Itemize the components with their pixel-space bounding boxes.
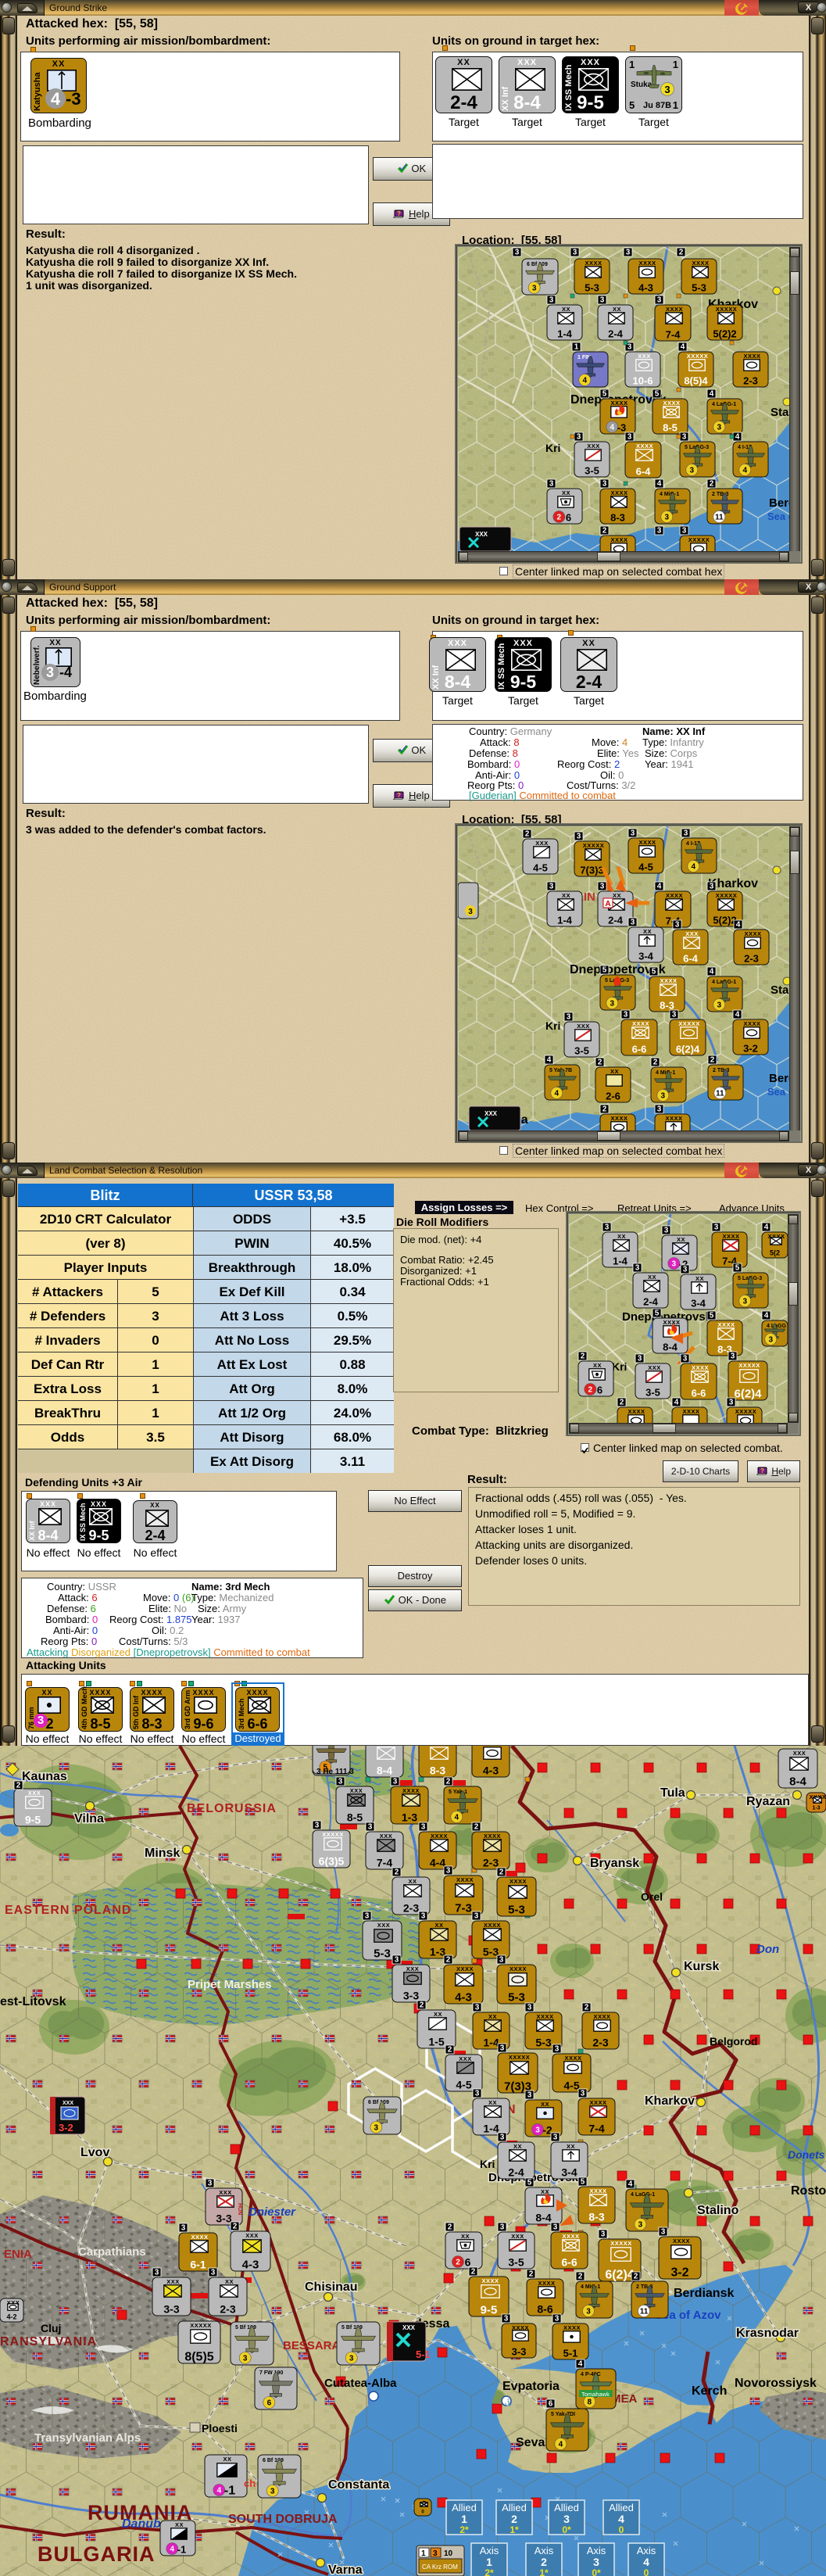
svg-text:3: 3 xyxy=(610,1000,615,1009)
svg-text:XXXX: XXXX xyxy=(743,1020,760,1027)
svg-text:XX: XX xyxy=(223,2456,231,2463)
svg-text:2-3: 2-3 xyxy=(592,2037,608,2049)
svg-text:3: 3 xyxy=(527,2004,532,2012)
svg-text:4: 4 xyxy=(692,863,696,872)
svg-text:2-3: 2-3 xyxy=(483,1857,499,1869)
svg-text:3: 3 xyxy=(601,2230,606,2239)
svg-text:XX: XX xyxy=(408,1878,417,1885)
svg-text:10-6: 10-6 xyxy=(632,375,653,387)
svg-text:XX: XX xyxy=(461,2233,470,2240)
svg-text:Ploesti: Ploesti xyxy=(202,2422,238,2434)
svg-text:0: 0 xyxy=(644,2567,649,2576)
svg-text:XXXXX: XXXXX xyxy=(735,1408,757,1415)
svg-text:4: 4 xyxy=(583,377,588,385)
svg-text:3: 3 xyxy=(211,2269,216,2277)
svg-text:6-1: 6-1 xyxy=(190,2259,206,2271)
svg-text:11: 11 xyxy=(640,2308,649,2316)
svg-text:XX: XX xyxy=(617,1233,626,1240)
svg-text:3: 3 xyxy=(628,343,632,352)
svg-text:0*: 0* xyxy=(562,2524,571,2535)
svg-text:4-5: 4-5 xyxy=(563,2080,579,2092)
svg-text:3: 3 xyxy=(535,2126,540,2135)
svg-text:3: 3 xyxy=(421,1823,426,1832)
svg-text:3: 3 xyxy=(631,919,635,927)
svg-text:6: 6 xyxy=(597,1385,603,1396)
svg-text:3: 3 xyxy=(731,1352,735,1361)
svg-text:5-3: 5-3 xyxy=(692,282,706,294)
svg-text:6(2)4: 6(2)4 xyxy=(605,2269,634,2282)
svg-text:11: 11 xyxy=(715,514,724,522)
svg-text:4-3: 4-3 xyxy=(483,1765,499,1777)
svg-text:4: 4 xyxy=(559,2441,563,2449)
svg-text:3: 3 xyxy=(349,2355,354,2363)
svg-text:XXXX: XXXX xyxy=(484,1833,501,1840)
svg-text:3-3: 3-3 xyxy=(403,1990,419,2002)
svg-text:2-4: 2-4 xyxy=(608,328,624,340)
svg-text:3: 3 xyxy=(600,296,605,305)
svg-text:CA Krz ROM: CA Krz ROM xyxy=(422,2563,458,2571)
svg-text:Berdia: Berdia xyxy=(769,496,789,510)
svg-text:XX: XX xyxy=(488,2013,497,2020)
svg-text:XX: XX xyxy=(610,1068,619,1075)
svg-text:Axis: Axis xyxy=(637,2545,656,2556)
svg-text:2: 2 xyxy=(581,1352,585,1361)
svg-text:4-3: 4-3 xyxy=(638,282,653,294)
svg-text:XXXX: XXXX xyxy=(510,1965,527,1972)
svg-text:XXXX: XXXX xyxy=(692,260,709,267)
svg-text:3: 3 xyxy=(474,1912,479,1921)
svg-text:XX: XX xyxy=(434,2011,442,2018)
svg-text:2: 2 xyxy=(448,2223,452,2232)
svg-text:8-4: 8-4 xyxy=(789,1775,806,1789)
svg-text:1-3: 1-3 xyxy=(430,1946,445,1958)
svg-text:XXXX: XXXX xyxy=(456,1965,474,1972)
svg-text:3: 3 xyxy=(638,2221,643,2230)
svg-text:Dniester: Dniester xyxy=(249,2205,296,2219)
svg-text:3-3: 3-3 xyxy=(512,2346,527,2358)
svg-text:2: 2 xyxy=(16,1782,21,1790)
svg-text:3-2: 3-2 xyxy=(670,2266,688,2280)
svg-text:3: 3 xyxy=(626,249,631,257)
svg-text:est-Litovsk: est-Litovsk xyxy=(0,1995,66,2008)
svg-text:3: 3 xyxy=(635,1264,640,1273)
svg-text:Varna: Varna xyxy=(328,2563,363,2576)
svg-text:8-5: 8-5 xyxy=(663,422,678,434)
svg-text:3: 3 xyxy=(657,1105,662,1114)
svg-text:2: 2 xyxy=(598,1059,603,1067)
svg-text:XXXX: XXXX xyxy=(682,1408,699,1415)
svg-text:6-6: 6-6 xyxy=(561,2256,577,2269)
svg-text:2*: 2* xyxy=(459,2524,469,2535)
svg-text:XX: XX xyxy=(225,2278,234,2285)
svg-text:Rostov: Rostov xyxy=(791,2184,826,2198)
svg-text:XXXX: XXXX xyxy=(562,2233,579,2240)
svg-text:XXXX: XXXX xyxy=(564,2055,581,2062)
svg-text:5: 5 xyxy=(735,1264,740,1273)
svg-text:3-5: 3-5 xyxy=(508,2256,524,2269)
svg-text:4-3: 4-3 xyxy=(242,2259,259,2272)
svg-text:3-4: 3-4 xyxy=(638,951,654,962)
svg-text:XXX: XXX xyxy=(648,1364,661,1371)
svg-text:Lvov: Lvov xyxy=(80,2146,109,2159)
svg-text:XX: XX xyxy=(648,1274,656,1281)
svg-text:XXXXX: XXXXX xyxy=(716,306,738,313)
svg-text:3: 3 xyxy=(661,1092,666,1101)
svg-text:6-4: 6-4 xyxy=(683,953,699,965)
svg-text:XXXXX: XXXXX xyxy=(583,842,605,849)
svg-text:8-4: 8-4 xyxy=(535,2212,551,2224)
svg-text:4-5: 4-5 xyxy=(533,862,548,874)
svg-text:Chisinau: Chisinau xyxy=(305,2280,358,2294)
svg-text:XXX: XXX xyxy=(587,442,600,450)
svg-text:RANSYLVANIA: RANSYLVANIA xyxy=(0,2335,97,2348)
svg-text:XXXX: XXXX xyxy=(660,977,677,984)
svg-text:2: 2 xyxy=(634,2273,638,2281)
svg-text:9-5: 9-5 xyxy=(25,1814,41,1826)
svg-text:6(3)5: 6(3)5 xyxy=(319,1855,345,1868)
svg-text:5-1: 5-1 xyxy=(563,2348,578,2359)
svg-text:BELORUSSIA: BELORUSSIA xyxy=(187,1802,277,1815)
svg-text:4: 4 xyxy=(736,921,741,930)
svg-text:5-3: 5-3 xyxy=(535,2037,551,2049)
svg-text:8: 8 xyxy=(588,2399,592,2407)
svg-text:XXXXX: XXXXX xyxy=(610,2240,632,2247)
svg-text:4: 4 xyxy=(710,390,714,399)
svg-text:3: 3 xyxy=(577,833,581,841)
svg-text:6(2)4: 6(2)4 xyxy=(734,1388,762,1401)
svg-text:8-3: 8-3 xyxy=(430,1765,445,1777)
svg-text:5: 5 xyxy=(581,2178,585,2187)
svg-text:3: 3 xyxy=(664,1227,669,1235)
svg-text:1-5: 1-5 xyxy=(428,2036,444,2048)
svg-text:4 MiG-1: 4 MiG-1 xyxy=(656,1070,675,1076)
svg-text:3: 3 xyxy=(603,480,607,489)
svg-text:XXX: XXX xyxy=(485,1110,498,1117)
svg-text:XXXX: XXXX xyxy=(722,1233,739,1240)
svg-text:XXX: XXX xyxy=(511,2233,524,2240)
svg-text:5: 5 xyxy=(652,968,656,976)
svg-text:2: 2 xyxy=(456,2259,460,2267)
svg-text:2: 2 xyxy=(525,830,530,839)
svg-text:2: 2 xyxy=(420,2001,424,2010)
svg-text:7-4: 7-4 xyxy=(377,1857,392,1869)
svg-text:3: 3 xyxy=(577,433,581,442)
svg-text:XXXX: XXXX xyxy=(638,839,656,846)
svg-text:XXXX: XXXX xyxy=(666,892,683,899)
svg-text:XXXX: XXXX xyxy=(632,1020,649,1027)
svg-text:Kri: Kri xyxy=(480,2158,495,2170)
svg-text:2: 2 xyxy=(395,1868,399,1877)
svg-text:3: 3 xyxy=(665,514,670,522)
svg-text:3: 3 xyxy=(605,1224,610,1232)
svg-text:6-6: 6-6 xyxy=(632,1044,647,1055)
svg-text:2: 2 xyxy=(679,249,684,257)
svg-text:5(2)2: 5(2)2 xyxy=(713,915,736,926)
svg-text:3: 3 xyxy=(768,1336,773,1345)
svg-text:2: 2 xyxy=(448,2046,452,2055)
svg-text:3: 3 xyxy=(553,2134,558,2142)
svg-text:XXXX: XXXX xyxy=(593,2013,610,2020)
svg-text:5-3: 5-3 xyxy=(585,282,599,294)
svg-text:3: 3 xyxy=(475,2090,480,2098)
svg-text:XXX: XXX xyxy=(380,1833,393,1840)
svg-text:4: 4 xyxy=(681,343,685,352)
svg-text:1*: 1* xyxy=(510,2524,519,2535)
svg-text:1: 1 xyxy=(486,2556,492,2568)
svg-text:3: 3 xyxy=(631,829,635,838)
svg-text:6: 6 xyxy=(465,2256,471,2269)
svg-text:XXX: XXX xyxy=(685,930,699,937)
svg-text:XXXX: XXXX xyxy=(589,2099,606,2106)
svg-text:2: 2 xyxy=(233,2223,238,2231)
svg-text:3: 3 xyxy=(683,1355,688,1363)
svg-text:1-4: 1-4 xyxy=(613,1256,628,1267)
svg-text:3: 3 xyxy=(690,467,695,475)
svg-text:8(5)4: 8(5)4 xyxy=(684,375,708,387)
svg-text:3-5: 3-5 xyxy=(645,1387,660,1399)
svg-text:XX: XX xyxy=(541,2188,549,2195)
svg-text:?: ? xyxy=(760,1467,764,1474)
svg-text:Tula: Tula xyxy=(660,1786,685,1800)
svg-text:Pripet Marshes: Pripet Marshes xyxy=(188,1978,272,1991)
svg-text:XXXX: XXXX xyxy=(673,2237,690,2245)
svg-text:Stalino: Stalino xyxy=(697,2204,739,2217)
svg-text:?: ? xyxy=(397,210,401,217)
svg-text:4: 4 xyxy=(764,1312,769,1320)
svg-text:Constanta: Constanta xyxy=(328,2478,389,2492)
svg-text:Cutatea-Alba: Cutatea-Alba xyxy=(324,2377,397,2390)
svg-text:Belgorod: Belgorod xyxy=(710,2035,757,2048)
svg-text:XX: XX xyxy=(513,2143,522,2150)
svg-text:4-5: 4-5 xyxy=(638,862,653,873)
svg-text:XX: XX xyxy=(562,306,570,313)
svg-text:Kri: Kri xyxy=(545,1019,560,1032)
svg-text:2: 2 xyxy=(710,480,714,489)
svg-text:4: 4 xyxy=(217,2487,222,2495)
svg-text:XXXXX: XXXXX xyxy=(687,353,709,360)
svg-text:8(5)5: 8(5)5 xyxy=(184,2351,213,2364)
svg-text:?: ? xyxy=(397,792,401,799)
svg-text:4: 4 xyxy=(547,1056,552,1065)
svg-text:4-3: 4-3 xyxy=(455,1991,472,2005)
svg-text:3: 3 xyxy=(553,2223,558,2232)
svg-text:4: 4 xyxy=(628,2180,633,2189)
svg-text:2: 2 xyxy=(603,1105,607,1114)
svg-text:11: 11 xyxy=(716,1090,724,1098)
svg-text:3: 3 xyxy=(315,1822,320,1830)
svg-text:-3: -3 xyxy=(617,422,627,434)
svg-text:8-3: 8-3 xyxy=(610,512,625,524)
svg-text:XXXX: XXXX xyxy=(481,2277,499,2284)
svg-text:XXXX: XXXX xyxy=(610,536,628,543)
svg-text:3: 3 xyxy=(573,249,577,257)
svg-text:3: 3 xyxy=(549,883,554,891)
svg-text:XXX: XXX xyxy=(535,840,549,847)
svg-text:3: 3 xyxy=(368,1823,373,1832)
svg-text:1-4: 1-4 xyxy=(557,328,573,340)
svg-text:7-3: 7-3 xyxy=(455,1902,472,1915)
svg-text:3: 3 xyxy=(683,1266,688,1274)
svg-text:XXX: XXX xyxy=(28,1790,41,1797)
svg-text:XXXXX: XXXXX xyxy=(322,1831,344,1838)
svg-text:3: 3 xyxy=(567,1013,571,1022)
svg-text:3: 3 xyxy=(657,296,662,305)
svg-text:XXXX: XXXX xyxy=(610,1115,628,1122)
svg-text:2: 2 xyxy=(499,1868,504,1877)
svg-text:3: 3 xyxy=(395,1956,399,1965)
svg-text:Berdia: Berdia xyxy=(769,1072,789,1085)
svg-text:1*: 1* xyxy=(539,2567,549,2576)
svg-text:XXXX: XXXX xyxy=(636,442,653,450)
svg-text:2: 2 xyxy=(529,2270,534,2279)
svg-text:1-4: 1-4 xyxy=(483,2123,499,2135)
svg-text:XXX: XXX xyxy=(350,1787,363,1794)
svg-text:XX: XX xyxy=(562,892,570,899)
svg-text:7(3)3: 7(3)3 xyxy=(580,865,603,876)
svg-text:3-2: 3-2 xyxy=(743,1043,758,1055)
svg-text:3-2: 3-2 xyxy=(59,2122,73,2134)
svg-text:4: 4 xyxy=(764,1224,769,1232)
svg-text:Allied: Allied xyxy=(554,2502,579,2513)
svg-text:Evpatoria: Evpatoria xyxy=(502,2380,560,2393)
svg-text:3: 3 xyxy=(374,2124,379,2133)
svg-text:0*: 0* xyxy=(592,2567,601,2576)
svg-text:4: 4 xyxy=(578,2360,583,2369)
svg-text:SOUTH DOBRUJA: SOUTH DOBRUJA xyxy=(228,2513,338,2526)
svg-text:Ryazan: Ryazan xyxy=(746,1795,790,1808)
svg-text:2-3: 2-3 xyxy=(403,1902,419,1915)
svg-text:BESSARA: BESSARA xyxy=(283,2339,341,2352)
svg-text:0: 0 xyxy=(619,2524,624,2535)
svg-text:XXXX: XXXX xyxy=(536,2013,553,2020)
svg-text:6: 6 xyxy=(566,512,571,524)
svg-text:2: 2 xyxy=(446,1778,451,1786)
svg-text:Axis: Axis xyxy=(587,2545,606,2556)
svg-text:Axis: Axis xyxy=(535,2545,554,2556)
svg-text:2*: 2* xyxy=(485,2567,494,2576)
svg-text:8-6: 8-6 xyxy=(537,2303,552,2316)
svg-text:HUN: HUN xyxy=(237,2203,242,2215)
svg-text:1-4: 1-4 xyxy=(557,915,573,926)
svg-text:Allied: Allied xyxy=(609,2502,634,2513)
svg-text:XXX: XXX xyxy=(475,531,488,538)
svg-text:8-4: 8-4 xyxy=(663,1342,678,1353)
svg-text:3: 3 xyxy=(527,2091,532,2100)
svg-text:XX: XX xyxy=(562,489,570,496)
svg-text:3: 3 xyxy=(657,527,662,536)
svg-text:5: 5 xyxy=(710,1312,714,1320)
svg-text:3-3: 3-3 xyxy=(216,2212,231,2225)
svg-text:3-4: 3-4 xyxy=(691,1298,706,1309)
svg-text:9-5: 9-5 xyxy=(481,2304,498,2317)
svg-text:XXXXX: XXXXX xyxy=(190,2322,212,2329)
svg-text:1-3: 1-3 xyxy=(402,1811,417,1824)
svg-text:2-3: 2-3 xyxy=(744,953,759,965)
svg-text:Novorossiysk: Novorossiysk xyxy=(735,2377,817,2390)
svg-text:6 Bf 109: 6 Bf 109 xyxy=(527,262,548,267)
svg-text:3-5: 3-5 xyxy=(574,1045,589,1057)
svg-text:Kerch: Kerch xyxy=(692,2384,727,2398)
svg-text:Minsk: Minsk xyxy=(145,1847,180,1860)
svg-text:2: 2 xyxy=(710,1056,715,1065)
svg-text:5: 5 xyxy=(655,390,660,399)
svg-text:XXXX: XXXX xyxy=(717,1321,735,1328)
svg-text:Kri: Kri xyxy=(612,1360,627,1373)
svg-text:6: 6 xyxy=(267,2399,272,2408)
svg-text:5: 5 xyxy=(655,1309,660,1318)
svg-text:XXXX: XXXX xyxy=(538,2280,555,2287)
svg-text:3: 3 xyxy=(549,296,554,305)
svg-text:2: 2 xyxy=(557,514,562,522)
svg-text:XXXX: XXXX xyxy=(585,260,602,267)
svg-text:3: 3 xyxy=(682,527,687,536)
svg-text:6-4: 6-4 xyxy=(636,466,652,478)
svg-text:2: 2 xyxy=(603,527,607,536)
svg-text:XXXX: XXXX xyxy=(692,1364,709,1371)
svg-text:5 Yak-7DI: 5 Yak-7DI xyxy=(551,2412,575,2417)
svg-text:3: 3 xyxy=(743,1298,748,1306)
svg-text:4: 4 xyxy=(455,1814,459,1822)
svg-text:XXXX: XXXX xyxy=(510,1878,527,1885)
svg-text:XX: XX xyxy=(488,2099,497,2106)
svg-text:3: 3 xyxy=(393,1778,398,1786)
svg-text:3 He 111 3: 3 He 111 3 xyxy=(316,1768,354,1776)
svg-text:3: 3 xyxy=(717,424,722,432)
svg-text:4: 4 xyxy=(710,968,714,976)
svg-text:Carpathians: Carpathians xyxy=(78,2245,146,2259)
svg-text:XXXX: XXXX xyxy=(563,2324,581,2331)
svg-text:Allied: Allied xyxy=(502,2502,527,2513)
svg-text:3-5: 3-5 xyxy=(585,465,599,477)
svg-text:3: 3 xyxy=(515,249,520,257)
svg-text:2: 2 xyxy=(578,2273,583,2281)
svg-text:4-2: 4-2 xyxy=(6,2313,16,2321)
svg-text:7-4: 7-4 xyxy=(666,329,681,341)
svg-text:3: 3 xyxy=(421,1912,426,1921)
svg-text:-1: -1 xyxy=(224,2485,235,2498)
svg-text:XXXX: XXXX xyxy=(666,306,683,313)
svg-text:Bryansk: Bryansk xyxy=(590,1857,639,1870)
svg-text:1: 1 xyxy=(421,2549,426,2558)
svg-text:2: 2 xyxy=(474,1823,479,1832)
svg-text:3-4: 3-4 xyxy=(561,2166,577,2179)
svg-text:XXX: XXX xyxy=(577,1023,590,1030)
svg-text:3: 3 xyxy=(684,829,688,838)
svg-text:XXX: XXX xyxy=(219,2189,232,2196)
svg-text:Sea of Az: Sea of Az xyxy=(767,511,789,522)
svg-text:2: 2 xyxy=(588,1386,593,1395)
svg-text:1-3: 1-3 xyxy=(812,1806,820,1811)
svg-text:4: 4 xyxy=(657,480,662,489)
svg-text:⚓: ⚓ xyxy=(504,2398,513,2406)
svg-text:2-4: 2-4 xyxy=(608,915,624,926)
svg-text:10: 10 xyxy=(444,2549,453,2558)
svg-text:Donets: Donets xyxy=(788,2148,825,2161)
svg-text:XXXX: XXXX xyxy=(402,1787,420,1794)
svg-text:XX: XX xyxy=(613,892,621,899)
svg-text:3: 3 xyxy=(661,2228,666,2237)
svg-text:3: 3 xyxy=(446,1867,451,1876)
svg-text:5: 5 xyxy=(527,2179,532,2187)
svg-text:3: 3 xyxy=(563,2513,570,2525)
svg-text:3: 3 xyxy=(499,1956,504,1965)
svg-text:Cluj: Cluj xyxy=(41,2322,61,2334)
svg-text:XX: XX xyxy=(613,306,621,313)
svg-text:XX: XX xyxy=(541,2101,549,2108)
svg-text:XXXX: XXXX xyxy=(191,2234,208,2241)
svg-text:Sta: Sta xyxy=(771,983,789,997)
svg-text:5-3: 5-3 xyxy=(508,1904,525,1917)
